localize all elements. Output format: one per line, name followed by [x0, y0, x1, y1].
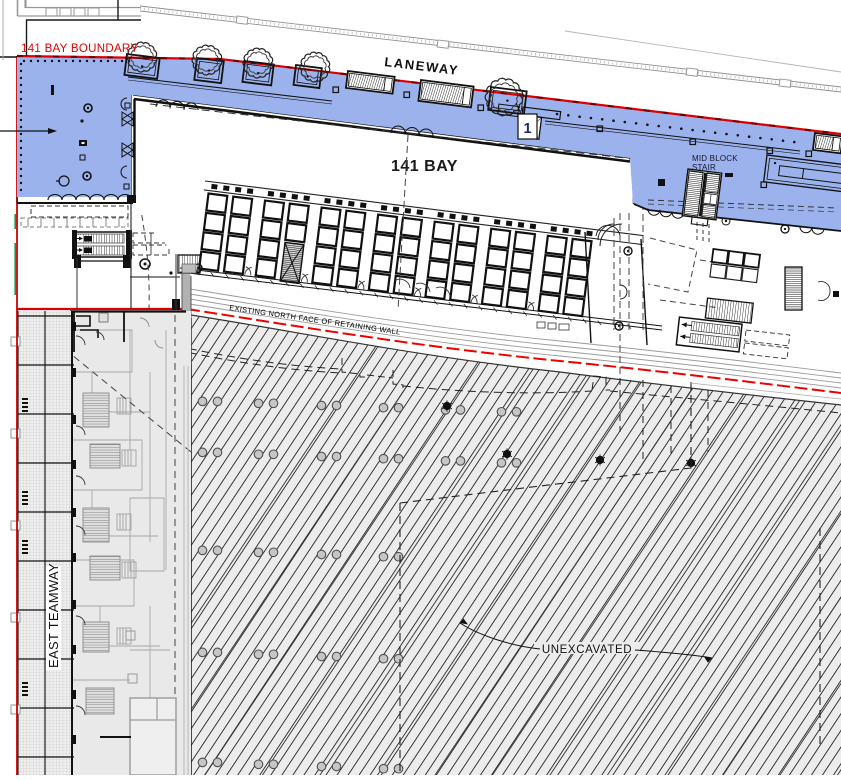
svg-text:MID BLOCK: MID BLOCK [692, 154, 738, 163]
svg-text:141 BAY BOUNDARY: 141 BAY BOUNDARY [21, 43, 138, 55]
svg-text:UNEXCAVATED: UNEXCAVATED [542, 644, 632, 656]
svg-text:EAST TEAMWAY: EAST TEAMWAY [46, 563, 61, 668]
svg-text:STAIR: STAIR [692, 163, 716, 172]
svg-text:141 BAY: 141 BAY [391, 158, 458, 175]
svg-text:1: 1 [523, 121, 531, 137]
